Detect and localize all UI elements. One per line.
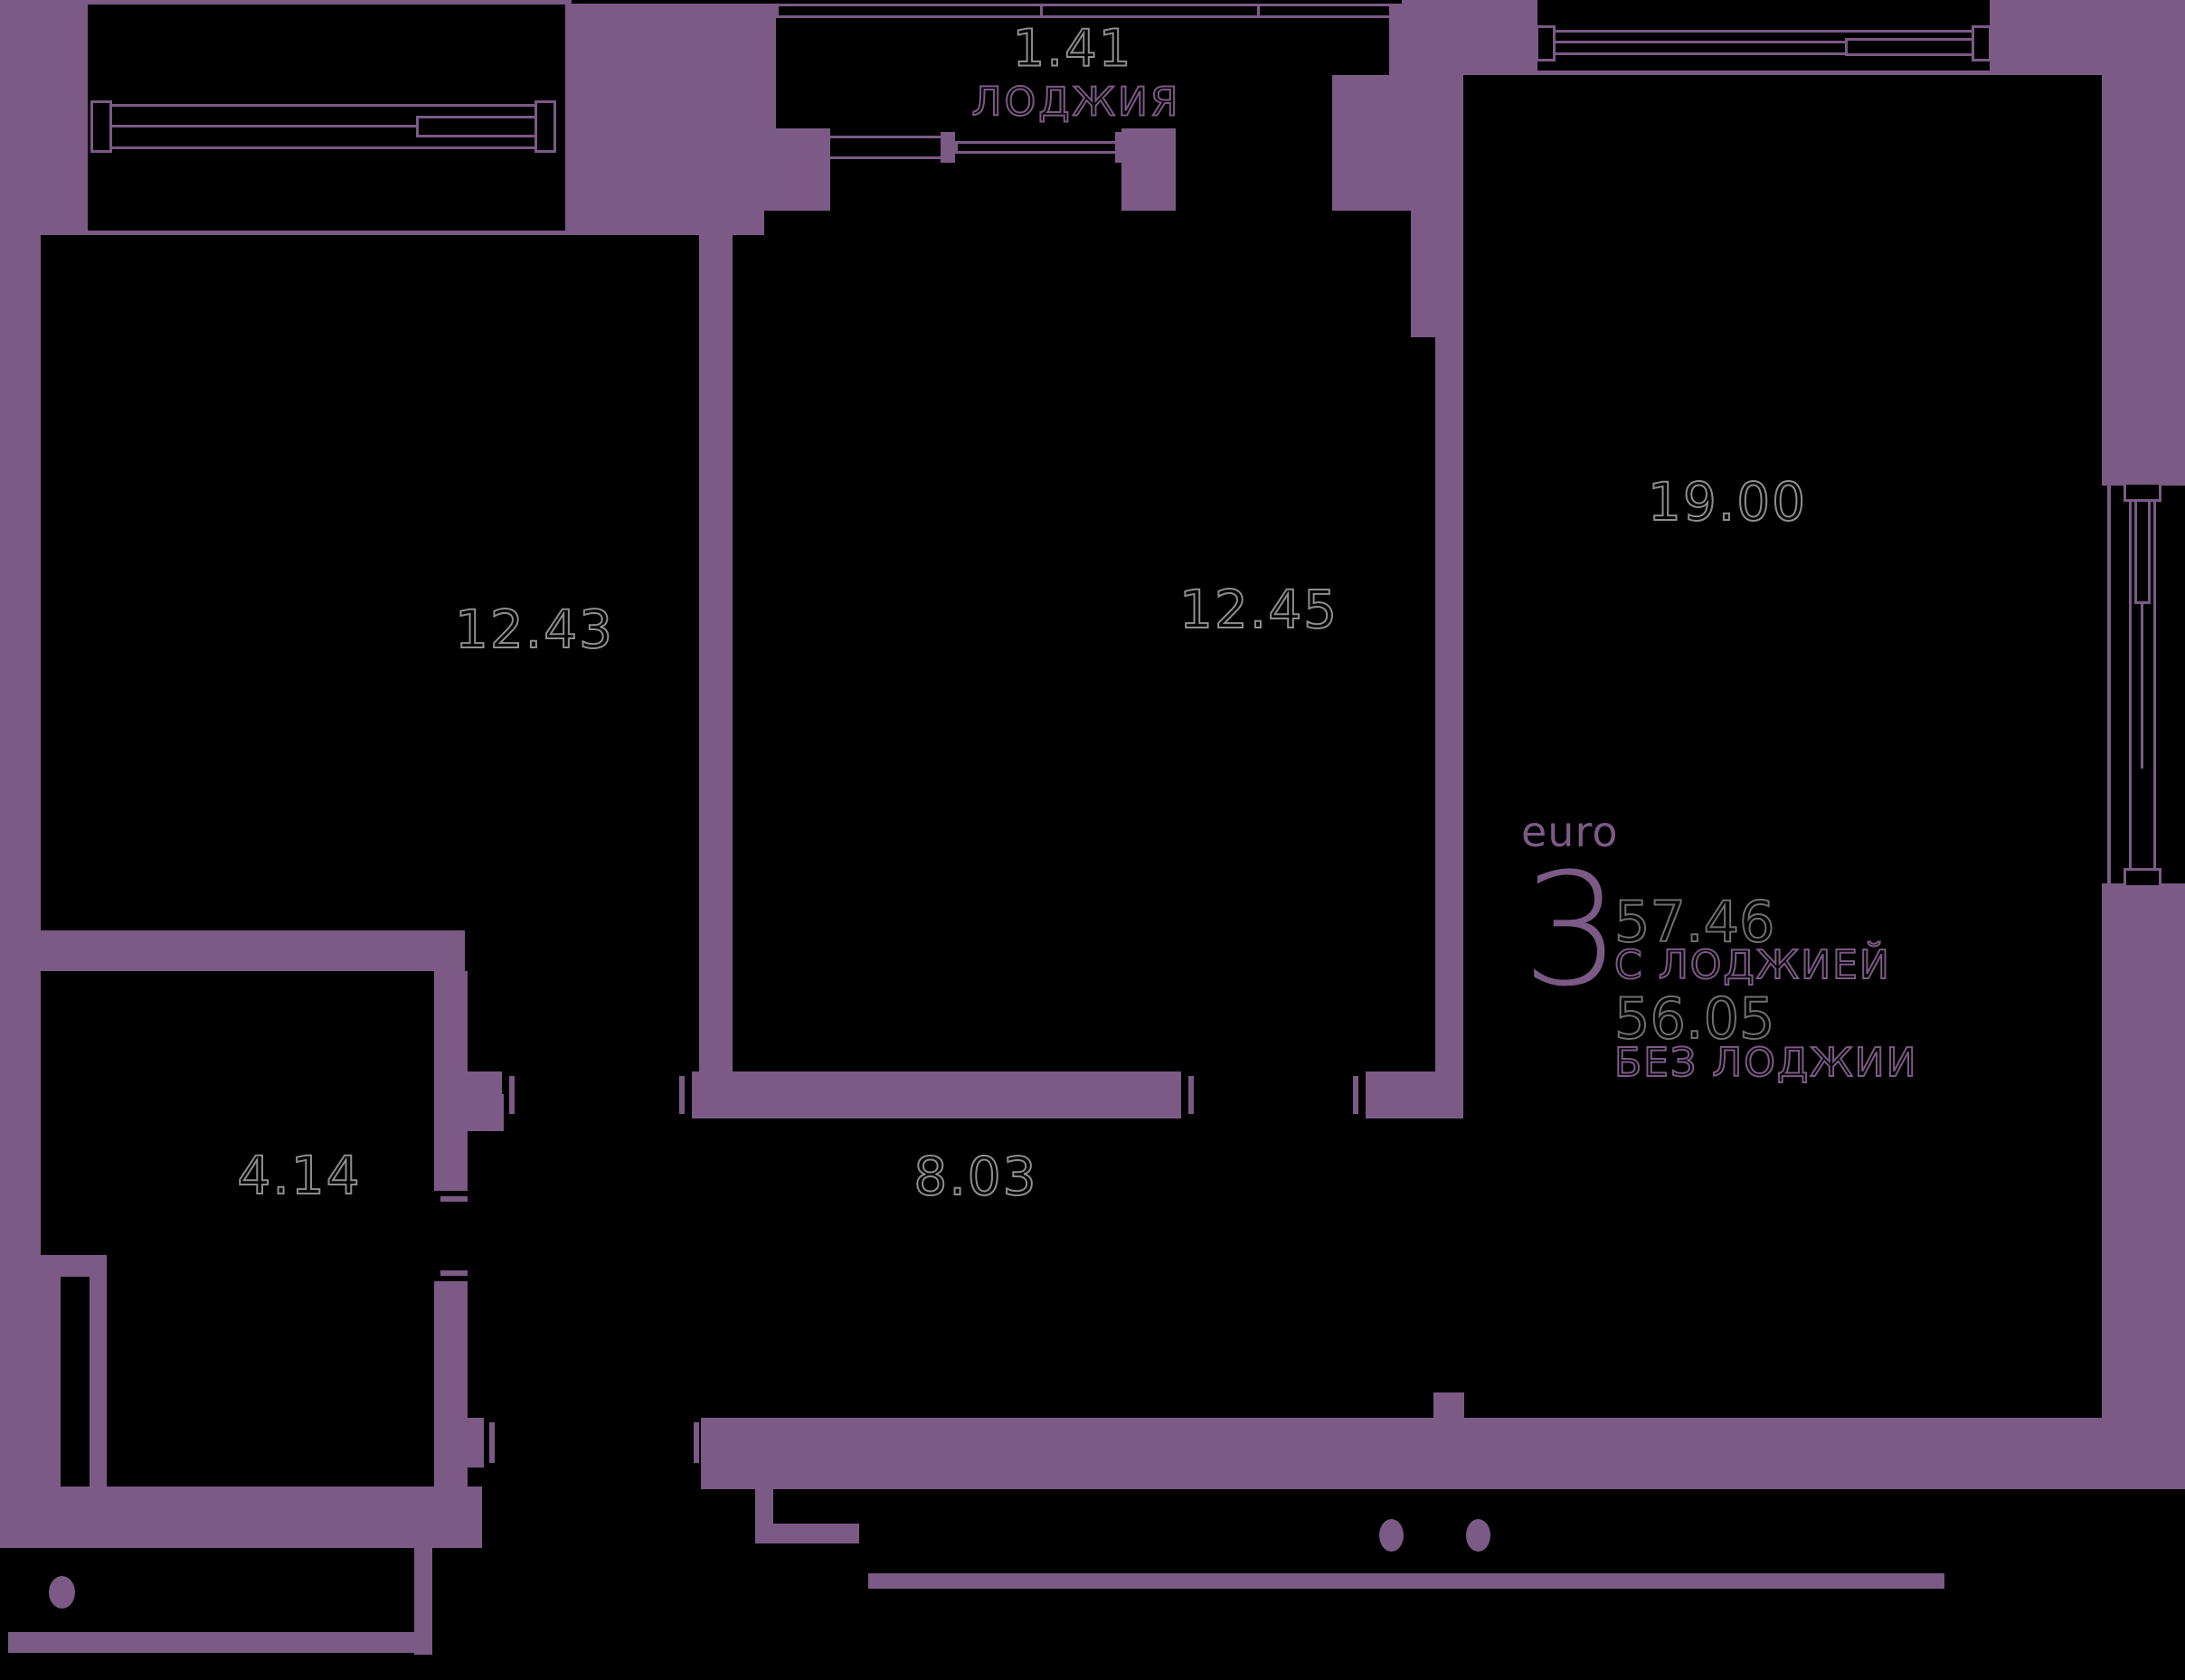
bathroom-area-label: 4.14: [237, 1145, 361, 1206]
bottom-wall-main: [701, 1418, 2107, 1489]
window-end-cap: [534, 100, 556, 153]
window-pane-line: [104, 125, 439, 127]
window-end-cap: [1536, 25, 1556, 61]
loggia-door-post: [1115, 132, 1130, 163]
loggia-name-label: ЛОДЖИЯ: [972, 80, 1181, 126]
loggia-railing-tick: [1257, 5, 1260, 16]
area-without-loggia-label: БЕЗ ЛОДЖИИ: [1614, 1040, 1918, 1086]
window-end-cap: [90, 100, 112, 153]
window-sash: [416, 116, 550, 137]
room-left-area-label: 12.43: [455, 599, 614, 660]
loggia-side-wall-left: [764, 4, 776, 131]
bottom-wall-stub: [1433, 1392, 1464, 1422]
hallway-top-wall-b: [692, 1071, 1181, 1118]
bathroom-top-wall: [41, 930, 465, 971]
window-end-cap: [2124, 868, 2161, 888]
wall-between-left-and-middle-room: [699, 211, 733, 1071]
loggia-railing: [776, 4, 1402, 18]
wall-top-left-pier: [0, 4, 88, 235]
area-with-loggia-label: С ЛОДЖИЕЙ: [1614, 942, 1891, 988]
window-bay-edge-top-left: [88, 231, 565, 235]
rooms-count: 3: [1522, 853, 1621, 1008]
door-jamb: [440, 1196, 468, 1202]
door-jamb: [440, 1270, 468, 1276]
wall-top-pier-right-of-loggia: [1402, 0, 1537, 75]
left-wall-niche-block: [0, 1255, 107, 1487]
door-jamb: [679, 1076, 685, 1114]
door-jamb: [1353, 1076, 1358, 1114]
wall-between-middle-room-and-kitchen: [1435, 337, 1463, 1118]
window-sash: [1845, 38, 1979, 56]
wall-top-center-pier: [565, 4, 764, 235]
left-wall-niche-slot: [61, 1277, 90, 1487]
loggia-window-icon: [828, 136, 943, 159]
bathroom-door-stub: [468, 1094, 504, 1131]
window-pane-line: [1551, 41, 1849, 43]
door-jamb: [509, 1076, 515, 1114]
window-end-cap: [2124, 482, 2161, 502]
window-sash: [2134, 496, 2151, 604]
wall-under-loggia-middle: [1121, 128, 1176, 211]
loggia-area-label: 1.41: [1013, 20, 1133, 79]
porch-bottom-line: [8, 1632, 432, 1653]
loggia-railing-tick: [1040, 5, 1043, 16]
exterior-wall-right-lower: [2102, 883, 2185, 1489]
loggia-door-post: [941, 132, 955, 163]
bathroom-bottom-wall: [0, 1487, 482, 1548]
hallway-top-wall-c: [1366, 1071, 1463, 1118]
loggia-side-wall-right: [1389, 4, 1402, 131]
porch-column-dot: [49, 1576, 75, 1609]
window-bay-edge-top-right: [1537, 71, 1994, 75]
window-end-cap: [1972, 25, 1991, 61]
room-middle-area-label: 12.45: [1179, 579, 1338, 640]
hallway-area-label: 8.03: [913, 1146, 1037, 1207]
section-dot: [1466, 1519, 1490, 1552]
door-jamb: [1188, 1076, 1194, 1114]
floor-plan: 1.41 ЛОДЖИЯ 12.43 12.45 19.00 4.14 8.03 …: [0, 0, 2185, 1680]
exterior-wall-right-upper: [2102, 72, 2185, 486]
entry-door-left-block: [434, 1418, 484, 1468]
door-jamb: [489, 1422, 495, 1463]
wall-top-right-pier: [1990, 0, 2185, 75]
landing-edge-line: [868, 1573, 1944, 1589]
window-bay-edge-right: [2107, 486, 2111, 883]
loggia-door-icon: [955, 141, 1118, 154]
kitchen-living-area-label: 19.00: [1648, 471, 1807, 533]
wall-between-middle-room-and-kitchen-top: [1411, 211, 1463, 337]
section-dot: [1379, 1519, 1404, 1552]
bathroom-right-wall-upper: [434, 971, 468, 1191]
door-jamb: [694, 1422, 699, 1463]
vestibule-wall-horizontal: [755, 1524, 859, 1543]
